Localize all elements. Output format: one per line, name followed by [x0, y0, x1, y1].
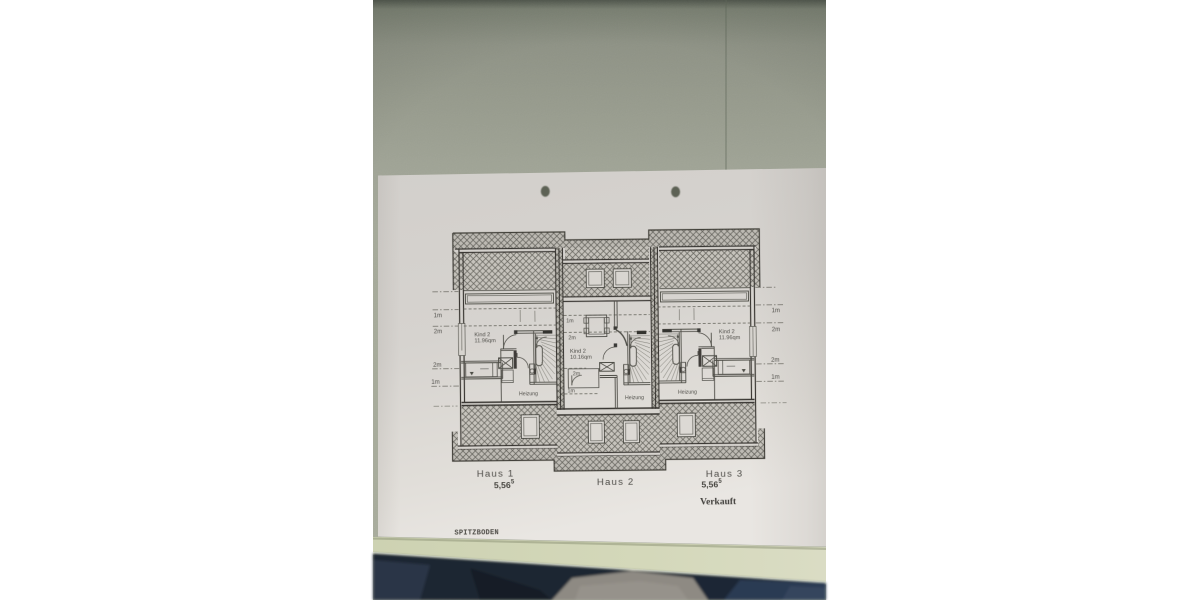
- svg-text:1m: 1m: [431, 380, 439, 386]
- svg-text:1m: 1m: [771, 375, 779, 381]
- svg-text:Haus 1: Haus 1: [477, 468, 515, 479]
- svg-text:Heizung: Heizung: [625, 395, 644, 401]
- svg-text:Verkauft: Verkauft: [700, 497, 737, 507]
- svg-text:1m: 1m: [772, 308, 780, 314]
- svg-text:5,56: 5,56: [701, 479, 718, 489]
- svg-text:5,56: 5,56: [494, 480, 511, 490]
- svg-text:1m: 1m: [434, 313, 442, 319]
- svg-text:11.96qm: 11.96qm: [719, 335, 741, 341]
- svg-text:2m: 2m: [771, 358, 779, 364]
- svg-text:1m: 1m: [566, 318, 574, 324]
- svg-text:2m: 2m: [573, 371, 581, 377]
- svg-text:Haus 3: Haus 3: [706, 469, 744, 480]
- svg-text:2m: 2m: [433, 363, 441, 369]
- svg-text:Heizung: Heizung: [678, 390, 697, 396]
- svg-text:2m: 2m: [772, 327, 780, 333]
- svg-text:5: 5: [511, 479, 515, 485]
- svg-text:11.96qm: 11.96qm: [474, 338, 496, 344]
- svg-text:10.16qm: 10.16qm: [570, 355, 592, 361]
- svg-text:1m: 1m: [567, 388, 575, 394]
- svg-text:2m: 2m: [434, 329, 442, 335]
- svg-text:Heizung: Heizung: [519, 391, 538, 397]
- svg-text:2m: 2m: [568, 335, 576, 341]
- svg-text:Haus 2: Haus 2: [597, 477, 635, 488]
- svg-text:SPITZBODEN: SPITZBODEN: [454, 529, 499, 537]
